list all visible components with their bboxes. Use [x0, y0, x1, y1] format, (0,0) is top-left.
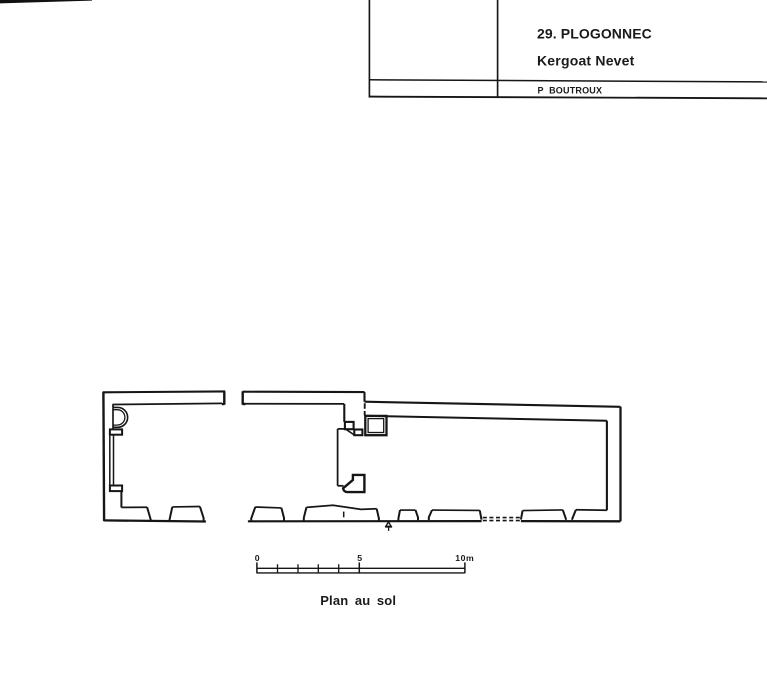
svg-text:5: 5: [357, 553, 362, 563]
svg-text:Kergoat Nevet: Kergoat Nevet: [537, 53, 635, 69]
svg-text:29. PLOGONNEC: 29. PLOGONNEC: [537, 26, 652, 42]
svg-text:0: 0: [255, 553, 260, 563]
svg-text:10m: 10m: [455, 553, 474, 563]
svg-text:Plan au sol: Plan au sol: [320, 593, 396, 608]
svg-text:P BOUTROUX: P BOUTROUX: [538, 85, 603, 95]
